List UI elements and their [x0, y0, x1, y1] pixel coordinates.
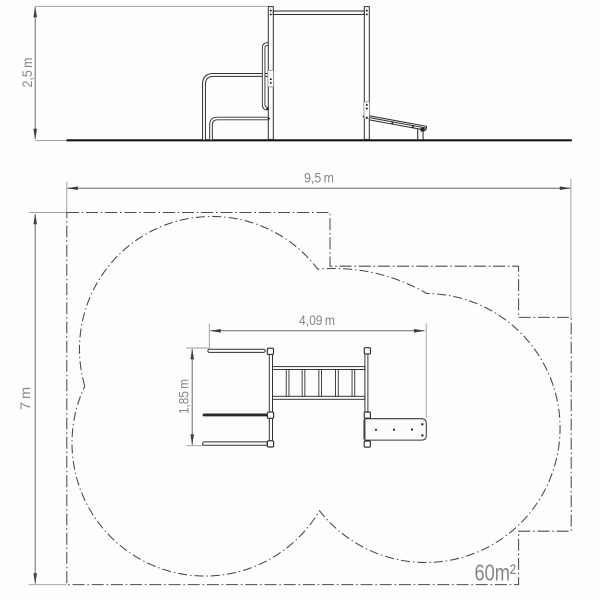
svg-text:7 m: 7 m [17, 387, 33, 410]
svg-text:2,5 m: 2,5 m [19, 58, 35, 88]
svg-text:60m²: 60m² [475, 559, 517, 585]
svg-text:1,85 m: 1,85 m [175, 379, 191, 414]
svg-text:9,5 m: 9,5 m [304, 170, 334, 186]
svg-text:4,09 m: 4,09 m [299, 312, 335, 328]
